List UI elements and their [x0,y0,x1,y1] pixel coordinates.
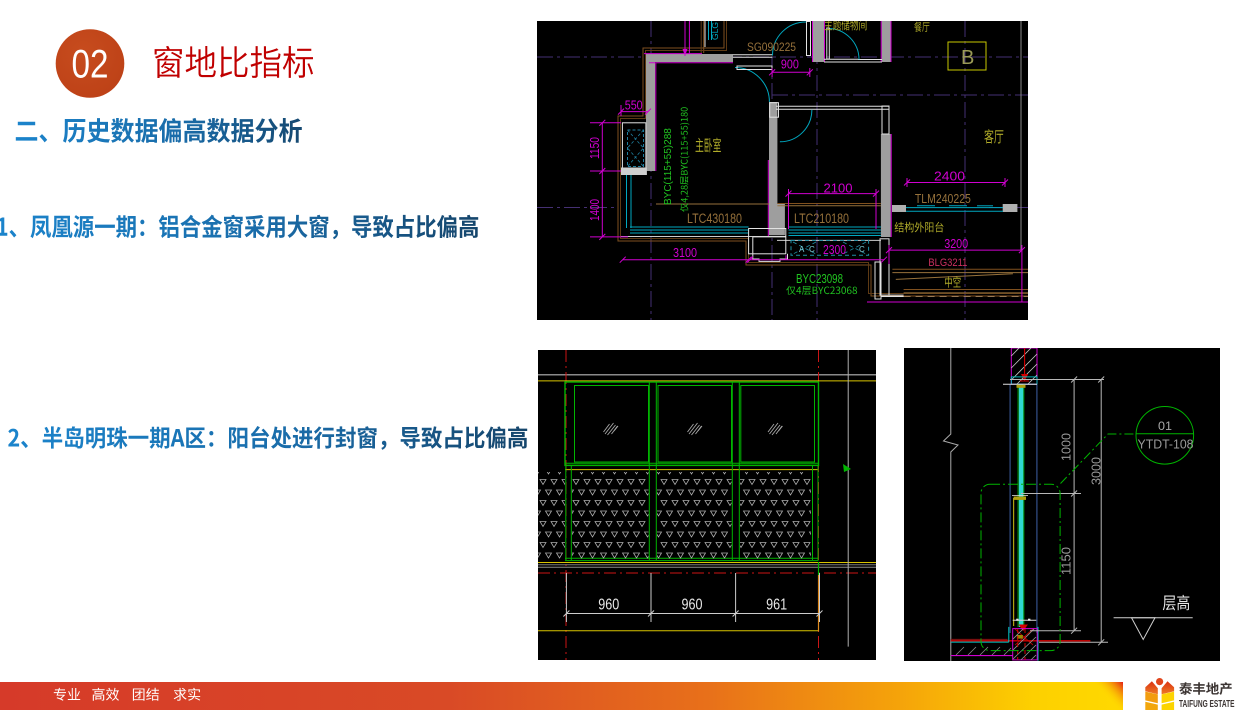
svg-text:01: 01 [1158,419,1172,433]
svg-text:C: C [859,245,865,254]
svg-text:960: 960 [682,597,703,614]
svg-text:961: 961 [766,597,787,614]
svg-text:YTDT-108: YTDT-108 [1138,438,1194,452]
svg-text:C: C [809,245,815,254]
svg-text:LTC430180: LTC430180 [687,211,742,226]
svg-text:TLM240225: TLM240225 [915,192,971,206]
svg-text:1400: 1400 [588,199,602,221]
svg-text:A: A [799,245,805,254]
svg-text:B: B [961,47,974,69]
svg-text:TAIFUNG ESTATE: TAIFUNG ESTATE [1179,699,1235,710]
svg-text:900: 900 [781,57,799,71]
svg-text:3100: 3100 [673,246,697,260]
svg-text:2100: 2100 [824,181,853,195]
svg-text:LTC210180: LTC210180 [794,211,849,226]
svg-text:1000: 1000 [1060,433,1074,461]
svg-text:BYC(115+55)288: BYC(115+55)288 [663,128,674,205]
svg-text:3000: 3000 [1090,457,1104,485]
svg-text:960: 960 [598,597,619,614]
svg-text:2400: 2400 [934,169,965,183]
svg-text:550: 550 [625,98,643,112]
svg-text:BLG3211: BLG3211 [928,257,967,269]
svg-text:BYC23098: BYC23098 [796,271,843,286]
svg-text:2300: 2300 [823,243,846,257]
svg-text:3200: 3200 [944,237,968,251]
svg-text:02: 02 [72,43,109,87]
svg-text:1150: 1150 [1060,547,1074,575]
svg-text:SG090225: SG090225 [747,40,796,54]
svg-text:1150: 1150 [588,137,602,159]
